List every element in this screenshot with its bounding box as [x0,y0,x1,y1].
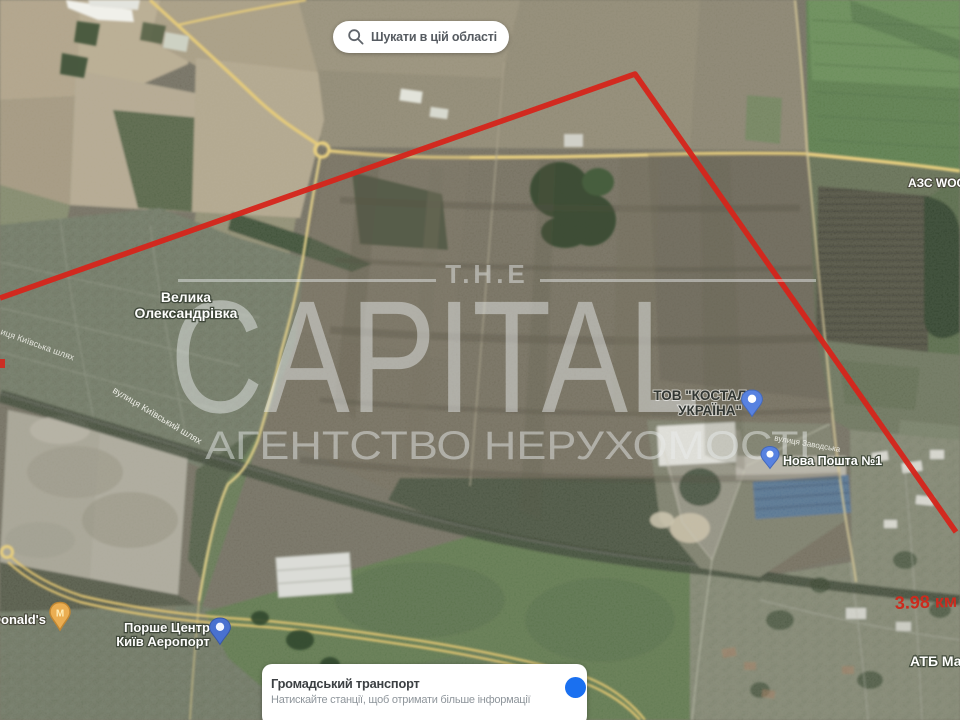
svg-text:АГЕНТСТВО НЕРУХОМОСТІ: АГЕНТСТВО НЕРУХОМОСТІ [205,424,811,468]
svg-text:ТОВ "КОСТАЛ: ТОВ "КОСТАЛ [653,388,746,403]
svg-text:3.98 км: 3.98 км [894,591,957,613]
svg-text:АЗС WOG: АЗС WOG [908,176,960,190]
svg-text:M: M [56,609,64,620]
svg-text:Олександрівка: Олександрівка [135,305,238,321]
svg-text:McDonald's: McDonald's [0,612,46,627]
svg-text:АТБ Мар: АТБ Мар [910,653,960,669]
svg-text:Порше Центр: Порше Центр [124,620,210,635]
svg-text:Київ Аеропорт: Київ Аеропорт [116,634,210,649]
svg-text:CAPITAL: CAPITAL [170,267,700,446]
svg-text:Нова Пошта №1: Нова Пошта №1 [783,454,882,468]
svg-text:Велика: Велика [161,289,211,305]
svg-text:УКРАЇНА": УКРАЇНА" [678,403,742,418]
